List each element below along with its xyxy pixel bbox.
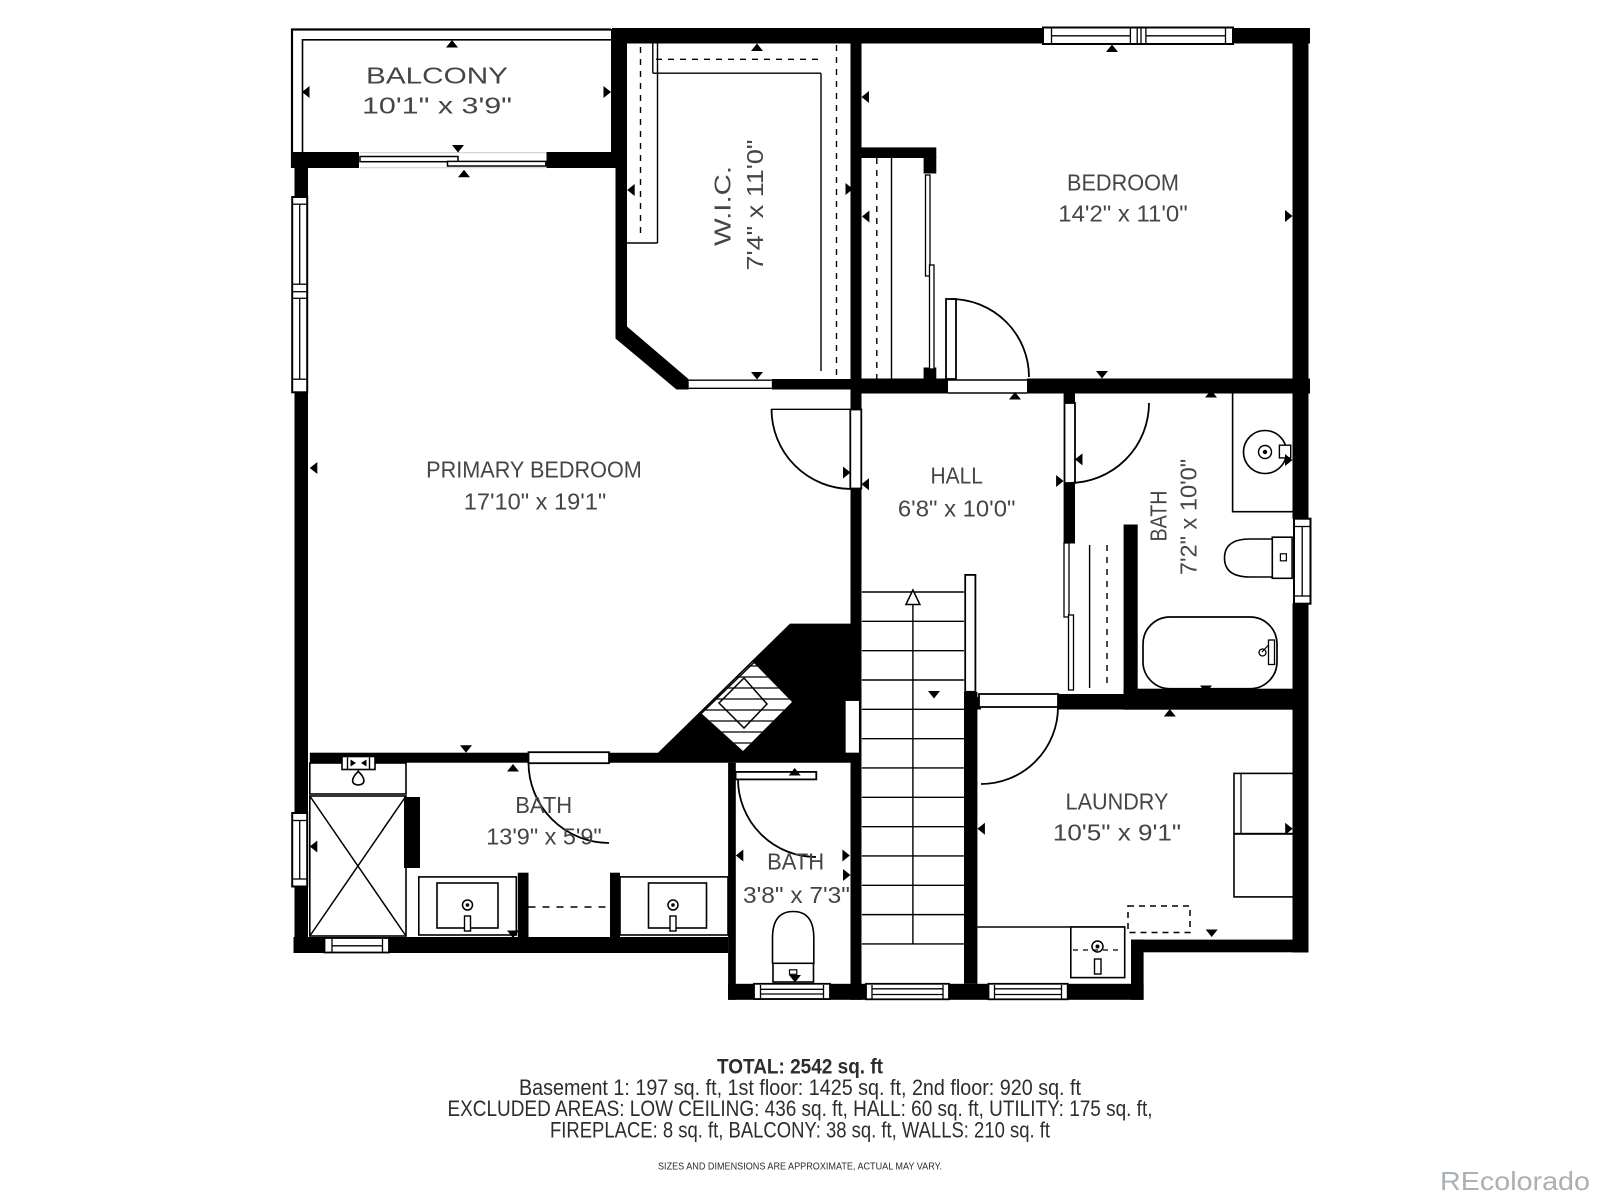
svg-text:HALL: HALL [931, 463, 983, 489]
svg-text:7'2" x 10'0": 7'2" x 10'0" [1176, 459, 1202, 575]
svg-text:PRIMARY BEDROOM: PRIMARY BEDROOM [426, 457, 642, 483]
svg-text:10'5" x 9'1": 10'5" x 9'1" [1053, 820, 1181, 846]
svg-text:REcolorado: REcolorado [1440, 1166, 1590, 1196]
svg-text:LAUNDRY: LAUNDRY [1066, 789, 1169, 815]
svg-text:13'9" x 5'9": 13'9" x 5'9" [486, 824, 602, 850]
svg-text:BATH: BATH [1146, 491, 1172, 542]
svg-text:BATH: BATH [515, 792, 572, 818]
svg-text:3'8" x 7'3": 3'8" x 7'3" [743, 882, 850, 908]
svg-text:7'4" x 11'0": 7'4" x 11'0" [742, 140, 768, 271]
svg-text:BATH: BATH [767, 849, 824, 875]
svg-text:BEDROOM: BEDROOM [1067, 170, 1179, 196]
svg-text:10'1" x 3'9": 10'1" x 3'9" [362, 93, 512, 119]
svg-text:17'10" x 19'1": 17'10" x 19'1" [464, 489, 607, 515]
svg-text:FIREPLACE: 8 sq. ft, BALCONY:: FIREPLACE: 8 sq. ft, BALCONY: 38 sq. ft,… [550, 1117, 1050, 1142]
svg-text:SIZES AND DIMENSIONS ARE APPRO: SIZES AND DIMENSIONS ARE APPROXIMATE, AC… [658, 1161, 942, 1172]
svg-text:BALCONY: BALCONY [366, 63, 508, 89]
svg-text:14'2" x 11'0": 14'2" x 11'0" [1058, 201, 1187, 227]
svg-text:W.I.C.: W.I.C. [710, 166, 736, 246]
svg-text:6'8" x 10'0": 6'8" x 10'0" [898, 496, 1016, 522]
